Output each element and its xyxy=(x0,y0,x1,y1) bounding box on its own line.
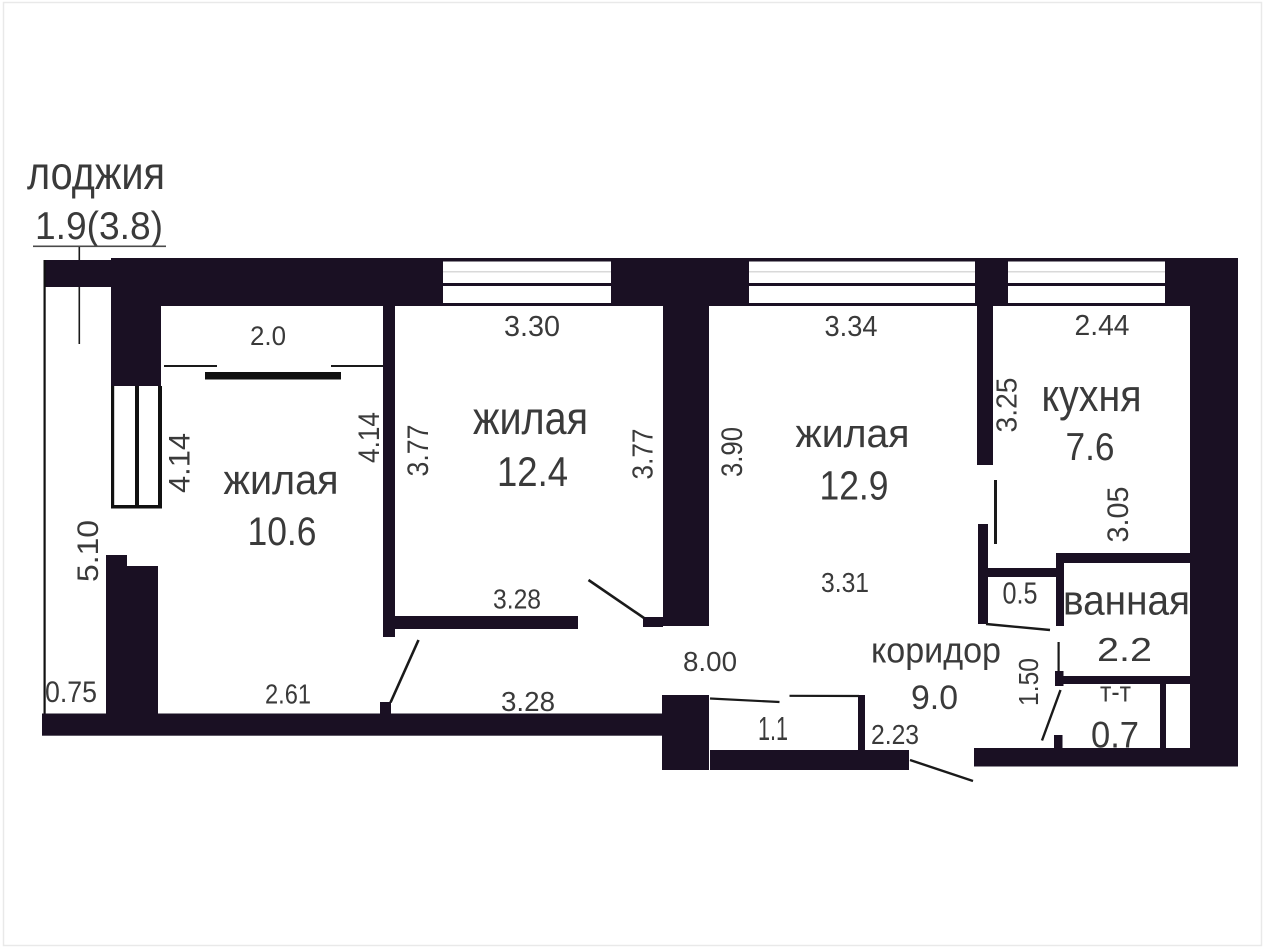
svg-text:0.5: 0.5 xyxy=(1003,576,1038,611)
svg-text:коридор: коридор xyxy=(871,630,1001,671)
svg-text:2.61: 2.61 xyxy=(265,679,311,710)
svg-text:лоджия: лоджия xyxy=(27,147,165,199)
svg-text:ванная: ванная xyxy=(1063,577,1190,624)
svg-text:жилая: жилая xyxy=(473,392,588,444)
svg-text:2.44: 2.44 xyxy=(1075,310,1130,342)
svg-text:1.50: 1.50 xyxy=(1013,658,1044,706)
svg-text:кухня: кухня xyxy=(1042,370,1142,421)
svg-text:0.7: 0.7 xyxy=(1091,715,1139,756)
svg-text:жилая: жилая xyxy=(796,412,910,456)
svg-text:2.23: 2.23 xyxy=(871,719,919,750)
svg-text:3.25: 3.25 xyxy=(992,378,1024,433)
svg-text:3.05: 3.05 xyxy=(1102,487,1135,543)
svg-text:3.28: 3.28 xyxy=(493,584,541,615)
svg-text:4.14: 4.14 xyxy=(164,433,197,493)
svg-text:2.2: 2.2 xyxy=(1097,631,1152,668)
svg-text:5.10: 5.10 xyxy=(72,520,105,582)
svg-text:7.6: 7.6 xyxy=(1066,426,1115,469)
svg-text:3.77: 3.77 xyxy=(402,425,435,477)
svg-text:1.9(3.8): 1.9(3.8) xyxy=(35,205,163,248)
svg-text:3.90: 3.90 xyxy=(716,427,749,477)
svg-text:9.0: 9.0 xyxy=(911,679,958,717)
svg-text:3.28: 3.28 xyxy=(501,686,555,717)
svg-text:12.9: 12.9 xyxy=(820,463,889,509)
svg-text:3.77: 3.77 xyxy=(628,429,660,480)
svg-text:3.30: 3.30 xyxy=(504,311,560,343)
svg-text:1.1: 1.1 xyxy=(758,710,788,747)
svg-text:3.31: 3.31 xyxy=(821,567,869,598)
svg-text:жилая: жилая xyxy=(224,456,339,503)
svg-text:12.4: 12.4 xyxy=(497,448,568,495)
svg-text:8.00: 8.00 xyxy=(683,646,737,677)
svg-text:10.6: 10.6 xyxy=(248,510,317,554)
svg-text:4.14: 4.14 xyxy=(353,412,386,463)
svg-text:0.75: 0.75 xyxy=(45,676,97,709)
svg-text:2.0: 2.0 xyxy=(250,321,286,351)
svg-text:3.34: 3.34 xyxy=(825,311,878,343)
svg-text:т-т: т-т xyxy=(1100,677,1131,709)
